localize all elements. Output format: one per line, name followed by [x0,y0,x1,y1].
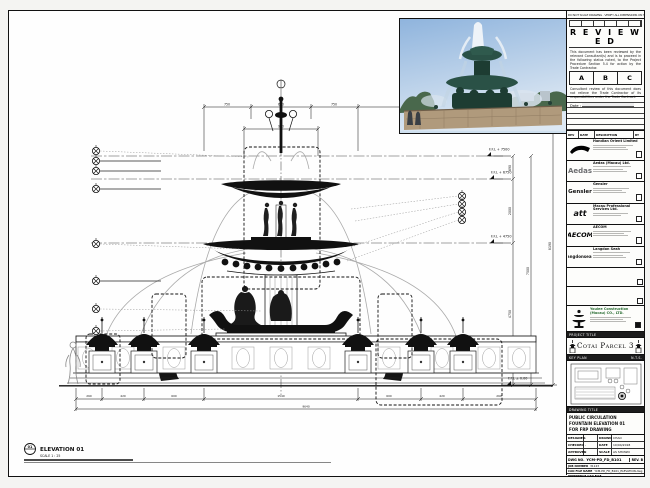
youlee-fountain-logo-icon [569,308,589,329]
svg-text:260: 260 [496,394,502,398]
blank-consultant-box [567,287,644,306]
stamp-header-cells [569,20,642,27]
key-plan-drawing [567,361,644,407]
stamp-status-options: A B C [569,71,642,85]
aedas-logo: Aedas [568,162,592,181]
consultant-checkbox [636,194,643,201]
svg-text:7500: 7500 [526,267,530,275]
sheet-note: DO NOT SCALE DRAWING · VERIFY ALL DIMENS… [567,13,644,17]
consultant-checkbox [637,298,644,305]
contractor-name-line2: (Macau) CO., LTD. [590,312,642,316]
consultant-checkbox [636,237,643,244]
contractor-checkbox [635,322,642,329]
consultant-checkbox [636,259,643,266]
svg-text:1540: 1540 [277,394,285,398]
consultant-box-gensler: Gensler Gensler [567,182,644,204]
revision-table-header: REV DATE DESCRIPTION BY [567,130,644,138]
reviewed-stamp: R E V I E W E D This document has been r… [567,19,644,97]
svg-text:F.F.L + 4750: F.F.L + 4750 [491,235,511,239]
blank-consultant-box [567,268,644,287]
revision-table: REV DATE DESCRIPTION BY [567,97,644,139]
drawing-sheet: F.F.L + 7500 F.F.L + 6750 F.F.L + 4750 F… [8,10,645,477]
stamp-paragraph-1: This document has been reviewed by the r… [569,48,642,71]
svg-text:2000: 2000 [508,207,512,215]
svg-text:600: 600 [171,394,177,398]
datum-lines [91,156,503,243]
reference-cad-file-row: REFERENCE CAD FILE- [567,474,644,478]
stamp-option-b: B [594,72,618,84]
consultant-name: Aedas (Macau) Ltd. [593,162,643,166]
consultant-box-aecom: AECOM AECOM [567,225,644,247]
svg-text:F.F.L ± 0.00: F.F.L ± 0.00 [508,377,527,381]
svg-text:9640: 9640 [302,405,310,409]
consultant-checkbox [636,173,643,180]
consultant-name: Handian Orient Limited [593,140,643,144]
consultant-name: Gensler [593,183,643,187]
svg-text:ELEVATION 01: ELEVATION 01 [40,447,84,453]
dwg-revision: REV. B [629,458,643,462]
dwg-number-row: DWG NO. YCM-PD_FD_B101 REV. B [567,456,644,464]
svg-text:420: 420 [120,394,126,398]
svg-text:750: 750 [224,103,230,107]
svg-text:600: 600 [386,394,392,398]
drawing-title-line3: FOR FRP DRAWING [569,427,642,433]
consultant-name: Langdon Seah [593,248,643,252]
lamp-ornament-icon [635,340,642,353]
consultant-checkbox [636,151,643,158]
svg-text:690: 690 [508,165,512,171]
svg-text:SCALE 1 : 25: SCALE 1 : 25 [40,454,60,458]
drawing-title: PUBLIC CIRCULATION FOUNTAIN ELEVATION 01… [567,413,644,435]
elevation-title: 01 ELEVATION 01 SCALE 1 : 25 [24,444,331,463]
aecom-logo: AECOM [568,226,592,245]
gensler-logo: Gensler [568,183,592,202]
consultant-checkbox [636,216,643,223]
lamp-ornament-icon [569,340,576,353]
consultant-box-aedas: Aedas Aedas (Macau) Ltd. [567,161,644,183]
contractor-box: Youlee Construction (Macau) CO., LTD. [567,306,644,332]
stamp-option-c: C [618,72,641,84]
consultant-box-langdonseah: langdonseah Langdon Seah [567,247,644,269]
handian-logo-icon [568,140,592,159]
stamp-option-a: A [570,72,594,84]
consultant-box-macau-professional: att Macau Professional Services Ltd. [567,204,644,226]
svg-text:8190: 8190 [548,242,552,250]
svg-text:F.F.L + 7500: F.F.L + 7500 [489,148,509,152]
consultant-checkbox [637,279,644,286]
svg-text:4750: 4750 [508,310,512,318]
fountain-photo [399,18,569,134]
stamp-title: R E V I E W E D [569,27,642,48]
sheet-note-strip: DO NOT SCALE DRAWING · VERIFY ALL DIMENS… [567,11,644,19]
svg-text:260: 260 [86,394,92,398]
right-callouts [347,190,466,261]
consultant-box-handian: Handian Orient Limited [567,139,644,161]
project-title-row: Cotai Parcel 3 [567,338,644,355]
langdonseah-logo: langdonseah [568,248,592,267]
svg-text:420: 420 [439,394,445,398]
dwg-number: YCM-PD_FD_B101 [586,458,628,462]
svg-text:750: 750 [331,103,337,107]
att-logo: att [568,205,592,224]
project-title: Cotai Parcel 3 [577,342,634,350]
consultant-name: AECOM [593,226,643,230]
title-block-fields: DESIGNED - DRAWN CHAO CHECKED - DATE 10/… [567,435,644,456]
consultant-name: Macau Professional Services Ltd. [593,205,643,212]
title-block: DO NOT SCALE DRAWING · VERIFY ALL DIMENS… [566,11,644,475]
svg-text:01: 01 [28,445,33,449]
